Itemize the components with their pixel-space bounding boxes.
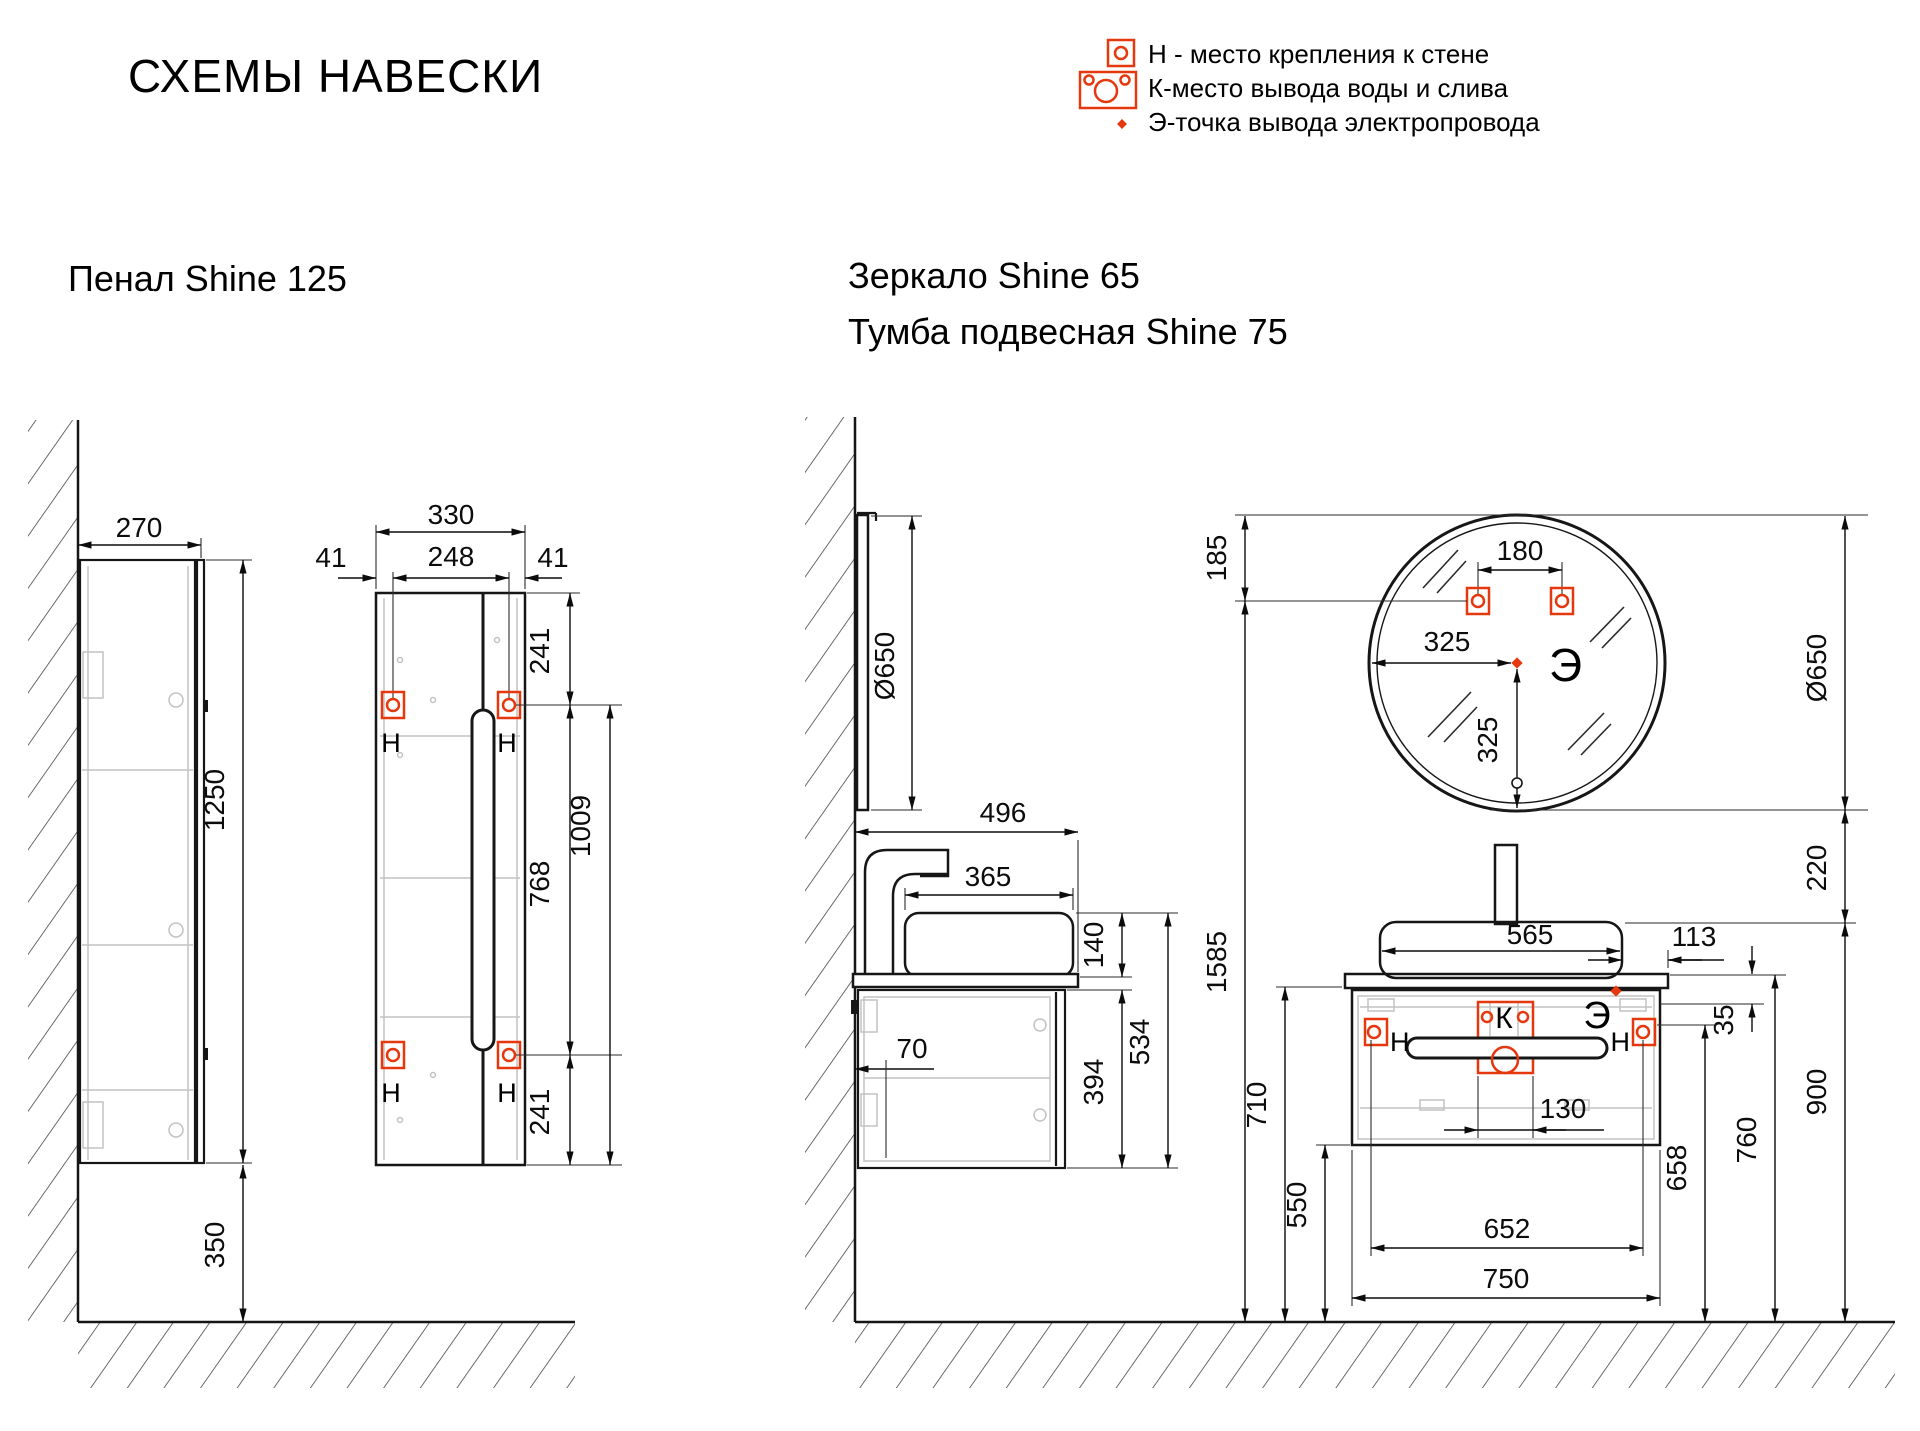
marker-label-h: Н — [1611, 1027, 1631, 1057]
dim-penal-margin-left: 41 — [315, 542, 346, 573]
dim-mirror-gap-to-sink: 220 — [1801, 845, 1832, 892]
floor-hatch-right — [855, 1322, 1895, 1388]
penal-handle — [472, 710, 494, 1050]
mounting-scheme-page: СХЕМЫ НАВЕСКИ Н - место крепления к стен… — [0, 0, 1920, 1431]
wall-hatch-left — [28, 420, 78, 1322]
penal-side-view — [80, 560, 208, 1163]
mirror-front-view: 180 185 325 Э 325 — [1201, 515, 1868, 811]
dim-right-offset: 113 — [1672, 921, 1717, 952]
marker-label-k: К — [1495, 1002, 1513, 1035]
penal-title: Пенал Shine 125 — [68, 258, 347, 299]
dim-penal-depth: 270 — [116, 512, 163, 543]
mirror-side — [857, 515, 868, 810]
penal-front-dimensions: 330 41 248 41 241 768 241 1009 — [315, 499, 622, 1165]
dim-penal-top-offset: 241 — [524, 628, 555, 675]
dim-cabinet-height: 394 — [1078, 1059, 1109, 1106]
dim-wall-gap: 70 — [896, 1033, 927, 1064]
dim-sink-width: 565 — [1507, 919, 1554, 950]
dim-mount-height: 658 — [1661, 1145, 1692, 1192]
countertop-front — [1345, 974, 1668, 988]
dim-penal-bottom-offset: 241 — [524, 1089, 555, 1136]
dim-mirror-diameter-side: Ø650 — [869, 632, 900, 701]
legend-water-outlet-label: К-место вывода воды и слива — [1148, 73, 1509, 103]
dim-sink-rim-height: 900 — [1801, 1069, 1832, 1116]
dim-bracket-span: 652 — [1484, 1213, 1531, 1244]
dim-penal-bracket-span: 768 — [524, 861, 555, 908]
marker-label-h: Н — [497, 1078, 517, 1108]
dim-mirror-center-y: 325 — [1472, 717, 1503, 764]
dim-penal-margin-right: 41 — [537, 542, 568, 573]
water-outlet-legend-icon — [1080, 72, 1136, 108]
legend: Н - место крепления к стене К-место выво… — [1080, 39, 1540, 137]
dim-sink-depth: 365 — [965, 861, 1012, 892]
dim-counter-depth: 496 — [980, 797, 1027, 828]
wall-mount-legend-icon — [1108, 40, 1134, 66]
vanity-title: Тумба подвесная Shine 75 — [848, 311, 1288, 352]
dim-penal-inner: 248 — [428, 541, 475, 572]
legend-electric-point-label: Э-точка вывода электропровода — [1148, 107, 1540, 137]
dim-counter-height: 760 — [1731, 1117, 1762, 1164]
vanity-side-view — [851, 513, 1078, 1168]
cabinet-side — [858, 990, 1065, 1168]
electric-point-legend-icon — [1117, 119, 1127, 129]
dim-mirror-diameter-front: Ø650 — [1801, 634, 1832, 703]
page-title: СХЕМЫ НАВЕСКИ — [128, 50, 543, 102]
dim-total-height: 534 — [1124, 1019, 1155, 1066]
wall-mount-marker — [1365, 1019, 1387, 1045]
dim-mirror-bracket-span: 180 — [1497, 535, 1544, 566]
penal-side-dimensions: 270 1250 350 — [78, 512, 252, 1322]
dim-penal-height: 1250 — [199, 769, 230, 831]
mirror-title: Зеркало Shine 65 — [848, 255, 1140, 296]
dim-mirror-top-offset: 185 — [1201, 535, 1232, 582]
marker-label-e: Э — [1549, 639, 1582, 691]
dim-cabinet-width: 750 — [1483, 1263, 1530, 1294]
vanity-front-dimensions: 565 113 35 130 652 750 658 760 Ø650 — [1201, 516, 1856, 1322]
dim-penal-floor-gap: 350 — [199, 1222, 230, 1269]
marker-label-h: Н — [1390, 1027, 1410, 1057]
dim-counter-to-mount: 35 — [1708, 1004, 1739, 1035]
floor-hatch-left — [78, 1322, 575, 1388]
countertop-side — [853, 974, 1078, 987]
wall-mount-marker — [382, 1042, 404, 1068]
dim-sink-height: 140 — [1078, 922, 1109, 969]
marker-label-h: Н — [497, 728, 517, 758]
marker-label-h: Н — [381, 1078, 401, 1108]
dim-drain-width: 130 — [1540, 1093, 1587, 1124]
electric-point-marker — [1511, 657, 1522, 668]
wall-hatch-right — [805, 417, 855, 1322]
penal-front-view: Н Н Н Н — [376, 572, 525, 1165]
sink-front — [1380, 922, 1622, 978]
dim-cabinet-bottom-height: 550 — [1281, 1182, 1312, 1229]
wall-mount-marker — [1633, 1019, 1655, 1045]
dim-mirror-mount-height: 1585 — [1201, 931, 1232, 993]
dim-counter-bottom-height: 710 — [1241, 1082, 1272, 1129]
vanity-side-dimensions: Ø650 496 365 140 394 534 70 — [855, 516, 1178, 1168]
dim-penal-width: 330 — [428, 499, 475, 530]
faucet-front — [1495, 845, 1517, 924]
dim-mirror-center-x: 325 — [1424, 626, 1471, 657]
marker-label-h: Н — [381, 728, 401, 758]
vanity-front-view: К Н Н Э — [1345, 845, 1668, 1145]
legend-wall-mount-label: Н - место крепления к стене — [1148, 39, 1489, 69]
sink-side — [905, 913, 1073, 977]
marker-label-e: Э — [1583, 995, 1610, 1037]
dim-penal-bracket-to-bottom: 1009 — [565, 795, 596, 857]
drawing-canvas: СХЕМЫ НАВЕСКИ Н - место крепления к стен… — [0, 0, 1920, 1431]
